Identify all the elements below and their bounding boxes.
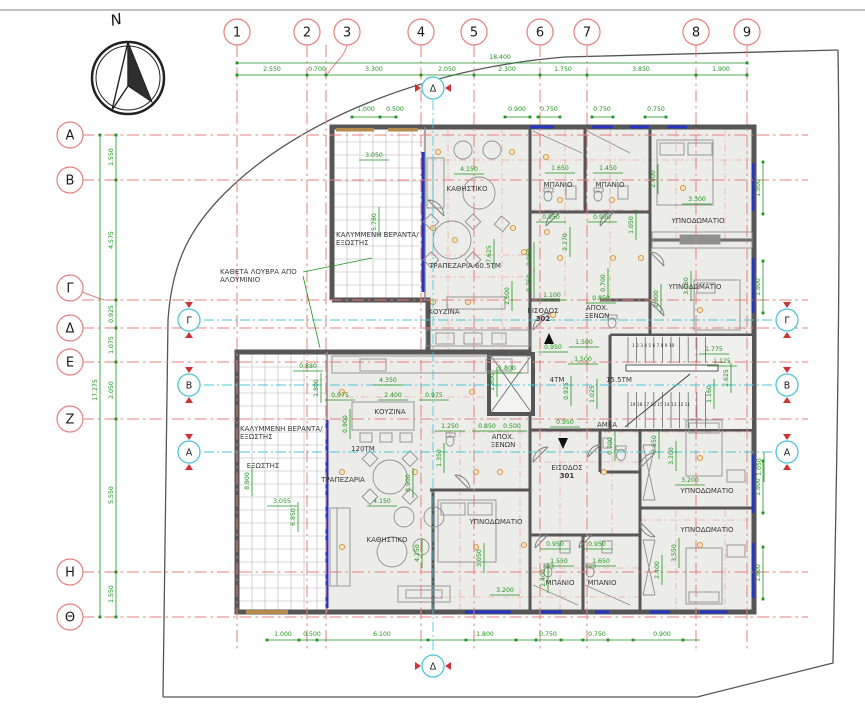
section-arrow-icon [445, 662, 451, 670]
room-label: ΥΠΝΟΔΩΜΑΤΙΟ [667, 283, 722, 291]
dimension-label: 1.800 [498, 365, 516, 372]
section-marker-letter: Β [186, 380, 193, 391]
dim-tick [99, 616, 102, 619]
dimension-label: 0.950 [546, 541, 564, 548]
dimension-label: 8.900 [244, 472, 251, 490]
dimension-label: 0.750 [588, 631, 606, 638]
room-label: ΥΠΝΟΔΩΜΑΤΙΟ [679, 487, 734, 495]
dimension-label: 0.500 [303, 631, 321, 638]
dim-tick [591, 116, 594, 119]
room-label: ΜΠΑΝΙΟ [546, 579, 575, 587]
grid-bubble-label: Β [66, 174, 75, 189]
dimension-label: 4.250 [414, 544, 421, 562]
dimension-label: 0.925 [563, 382, 570, 400]
dim-tick [535, 639, 538, 642]
dimension-label: 1.800 [755, 278, 762, 296]
dimension-label: 2.050 [438, 66, 456, 73]
section-arrow-icon [783, 367, 791, 373]
dim-tick [465, 639, 468, 642]
room-label: ΕΙΣΟΔΟΣ [551, 464, 582, 472]
louvre-annotation-line1: ΚΑΘΕΤΑ ΛΟΥΒΡΑ ΑΠΟ [220, 268, 297, 276]
dim-tick [644, 116, 647, 119]
dim-tick [762, 260, 765, 263]
room-label: ΚΑΛΥΜΜΕΝΗ ΒΕΡΑΝΤΑ/ [240, 425, 323, 433]
stair-numbers-up: 1 2 3 4 5 6 7 8 9 10 [632, 343, 675, 349]
section-arrow-icon [185, 332, 193, 338]
floor-plan-drawing: ΓΓΒΒΑΑΔΔ 18.4002.5500.7003.3002.0502.300… [0, 0, 865, 704]
light-dot-icon [601, 469, 606, 474]
dim-tick [537, 116, 540, 119]
dimension-label: 0.500 [503, 423, 521, 430]
dimension-label: 2.625 [723, 369, 730, 387]
dimension-label: 1.050 [756, 458, 763, 476]
section-arrow-icon [185, 434, 193, 440]
dimension-label: 0.950 [556, 419, 574, 426]
dimension-label: 0.880 [299, 363, 317, 370]
light-dot-icon [339, 469, 344, 474]
section-marker-letter: Γ [784, 315, 790, 326]
dimension-label: 1.125 [713, 358, 731, 365]
light-dot-icon [697, 307, 702, 312]
dimension-label: 2.050 [108, 381, 115, 399]
light-dot-icon [544, 229, 549, 234]
dimension-label: 6.100 [373, 631, 391, 638]
dimension-label: 7.625 [486, 245, 493, 263]
dimension-label: 0.750 [540, 106, 558, 113]
floor-plan-sheet: ΓΓΒΒΑΑΔΔ 18.4002.5500.7003.3002.0502.300… [0, 0, 865, 704]
room-label: ΜΠΑΝΙΟ [544, 181, 573, 189]
dimension-label: 1.100 [543, 292, 561, 299]
dimension-label: 1.800 [755, 179, 762, 197]
dimension-label: 3.200 [496, 587, 514, 594]
room-label: ΞΕΝΩΝ [491, 441, 516, 449]
dim-tick [560, 639, 563, 642]
dimension-label: 2.550 [263, 66, 281, 73]
room-label: ΚΟΥΖΙΝΑ [374, 408, 405, 416]
dimension-label: 1.500 [575, 339, 593, 346]
light-dot-icon [543, 154, 548, 159]
dimension-label: 1.350 [436, 449, 443, 467]
dimension-label: 1.800 [313, 379, 320, 397]
dim-tick [632, 639, 635, 642]
dimension-label: 2.270 [562, 233, 569, 251]
dimension-label: 1.550 [108, 585, 115, 603]
room-label: ΤΡΑΠΕΖΑΡΙΑ 60.5ΤΜ [428, 262, 501, 270]
dim-tick [99, 134, 102, 137]
north-compass-icon [92, 42, 164, 114]
dimension-label: 3.200 [681, 477, 699, 484]
dim-tick [306, 74, 309, 77]
room-label: 120ΤΜ [351, 445, 375, 453]
dimension-label: 0.750 [526, 274, 533, 292]
section-marker-letter: Α [186, 447, 193, 458]
dimension-label: 1.800 [755, 478, 762, 496]
grid-bubble-label: Δ [66, 322, 75, 337]
grid-bubble-label: Α [66, 129, 75, 144]
dim-tick [115, 299, 118, 302]
dim-tick [316, 639, 319, 642]
dim-tick [236, 74, 239, 77]
grid-bubble-label: 6 [536, 26, 544, 41]
section-arrow-icon [185, 464, 193, 470]
room-label: 4ΤΜ [550, 376, 565, 384]
grid-bubble-label: 2 [303, 26, 311, 41]
room-label: ΑΠΟΧ. [586, 304, 609, 312]
light-dot-icon [452, 237, 457, 242]
dim-tick [325, 74, 328, 77]
grid-bubble-label: Θ [65, 611, 75, 626]
room-label: ΜΠΑΝΙΟ [596, 181, 625, 189]
dimension-label: 3.200 [668, 447, 675, 465]
dimension-label: 4.150 [460, 166, 478, 173]
dimension-label: 2.400 [384, 392, 402, 399]
dim-tick [395, 116, 398, 119]
dimension-label: 6.850 [290, 508, 297, 526]
dimension-label: 2.600 [504, 287, 511, 305]
dimension-label: 0.900 [342, 415, 349, 433]
room-label: ΚΑΛΥΜΜΕΝΗ ΒΕΡΑΝΤΑ/ [336, 231, 419, 239]
dimension-label: 1.500 [574, 356, 592, 363]
dim-tick [586, 74, 589, 77]
room-label: ΚΟΥΖΙΝΑ [428, 308, 459, 316]
dimension-label: 3.050 [476, 549, 483, 567]
dimension-label: 0.950 [588, 541, 606, 548]
dim-tick [351, 116, 354, 119]
dimension-label: 0.950 [544, 344, 562, 351]
dimension-label: 1.550 [108, 148, 115, 166]
dim-tick [695, 74, 698, 77]
dimension-label: 3.850 [632, 66, 650, 73]
room-label: ΚΑΘΗΣΤΙΚΟ [366, 536, 408, 544]
dim-tick [298, 639, 301, 642]
dim-tick [427, 639, 430, 642]
dimension-label: 1.800 [476, 631, 494, 638]
grid-bubble-label: 3 [343, 26, 351, 41]
grid-bubble-label: Ε [66, 356, 74, 371]
dimension-label: 3.300 [688, 196, 706, 203]
room-label: ΥΠΝΟΔΩΜΑΤΙΟ [670, 217, 725, 225]
dimension-label: 3.300 [365, 66, 383, 73]
dim-tick [515, 639, 518, 642]
grid-bubble-label: 9 [743, 26, 751, 41]
grid-bubble-label: Η [65, 566, 75, 581]
dimension-label: 1.000 [357, 106, 375, 113]
grid-bubble-label: 8 [692, 26, 700, 41]
grid-bubble-label: 4 [417, 26, 425, 41]
bubble-leader [82, 292, 104, 300]
section-arrow-icon [185, 367, 193, 373]
dim-tick [539, 74, 542, 77]
light-dot-icon [497, 469, 502, 474]
dimension-label: 1.025 [589, 385, 596, 403]
light-dot-icon [435, 149, 440, 154]
dimension-label: 1.650 [592, 558, 610, 565]
grid-bubble-label: Γ [66, 282, 74, 297]
dim-tick [762, 598, 765, 601]
section-arrow-icon [783, 302, 791, 308]
room-label: ΑΜΕΑ [597, 421, 617, 429]
dimension-top-overall: 18.400 [489, 54, 511, 61]
stair-numbers-down: 19 18 17 16 15 14 13 12 11 [630, 402, 690, 408]
north-label: N [109, 10, 124, 30]
light-dot-icon [697, 455, 702, 460]
dimension-label: 0.900 [653, 631, 671, 638]
section-arrow-icon [445, 84, 451, 92]
room-label: ΕΙΣΟΔΟΣ [527, 307, 558, 315]
dim-tick [115, 616, 118, 619]
section-arrow-icon [783, 397, 791, 403]
dim-tick [762, 213, 765, 216]
section-marker-letter: Γ [186, 315, 192, 326]
dimension-label: 0.950 [542, 214, 560, 221]
dimension-label: 5.780 [371, 213, 378, 231]
dimension-label: 3.055 [273, 498, 291, 505]
dimension-label: 0.925 [108, 305, 115, 323]
section-marker-letter: Δ [430, 83, 437, 94]
dim-tick [746, 62, 749, 65]
dimension-label: 1.075 [108, 336, 115, 354]
light-dot-icon [610, 255, 615, 260]
dim-tick [115, 571, 118, 574]
dimension-label: 1.800 [755, 564, 762, 582]
dim-tick [607, 639, 610, 642]
room-label: 302 [536, 315, 551, 323]
dim-tick [379, 116, 382, 119]
dimension-label: 8.900 [405, 474, 412, 492]
section-marker-letter: Δ [430, 661, 437, 672]
room-label: ΞΕΝΩΝ [585, 312, 610, 320]
dimension-label: 2.300 [498, 66, 516, 73]
dimension-label: 1.900 [712, 66, 730, 73]
dimension-label: 1.650 [551, 165, 569, 172]
dimension-label: 1.250 [441, 423, 459, 430]
section-marker-letter: Β [784, 380, 791, 391]
light-dot-icon [521, 542, 526, 547]
light-dot-icon [697, 542, 702, 547]
dimension-label: 1.800 [489, 373, 496, 391]
dim-tick [115, 418, 118, 421]
section-marker-letter: Α [784, 447, 791, 458]
dimension-label: 3.550 [671, 544, 678, 562]
room-label: 15.5ΤΜ [606, 376, 632, 384]
room-label: ΕΞΩΣΤΗΣ [240, 433, 273, 441]
dimension-label: 0.700 [607, 437, 614, 455]
dimension-label: 1.000 [274, 631, 292, 638]
dimension-label: 0.900 [508, 106, 526, 113]
dimension-label: 1.750 [554, 66, 572, 73]
dimension-label: 0.950 [593, 214, 611, 221]
dimension-label: 0.850 [592, 295, 610, 302]
dim-tick [236, 62, 239, 65]
dimension-label: 4.575 [108, 231, 115, 249]
dimension-label: 5.550 [108, 486, 115, 504]
section-arrow-icon [783, 464, 791, 470]
dimension-label: 2.400 [650, 170, 657, 188]
room-label: ΥΠΝΟΔΩΜΑΤΙΟ [468, 518, 523, 526]
dim-tick [746, 74, 749, 77]
section-arrow-icon [783, 434, 791, 440]
dim-tick [115, 179, 118, 182]
light-dot-icon [509, 149, 514, 154]
room-label: 301 [560, 472, 575, 480]
dimension-label: 1.450 [599, 165, 617, 172]
section-arrow-icon [415, 662, 421, 670]
dim-tick [473, 74, 476, 77]
dim-tick [115, 327, 118, 330]
dim-tick [582, 639, 585, 642]
dim-tick [115, 134, 118, 137]
dim-tick [612, 116, 615, 119]
dimension-label: 1.160 [706, 385, 713, 403]
dimension-label: 0.850 [526, 248, 533, 266]
grid-bubble-label: 5 [470, 26, 478, 41]
dim-tick [266, 639, 269, 642]
dimension-label: 2.650 [651, 435, 658, 453]
dimension-label: 1.550 [550, 558, 568, 565]
room-label: ΕΞΩΣΤΗΣ [336, 239, 369, 247]
dimension-label: 0.750 [647, 106, 665, 113]
dimension-label: 4.150 [373, 498, 391, 505]
bubble-leader [327, 45, 347, 75]
dim-tick [762, 512, 765, 515]
dim-tick [665, 116, 668, 119]
dim-tick [682, 639, 685, 642]
light-dot-icon [638, 255, 643, 260]
room-label: ΕΞΩΣΤΗΣ [247, 462, 280, 470]
room-label: ΑΠΟΧ. [492, 433, 515, 441]
dimension-label: 0.500 [386, 106, 404, 113]
dim-tick [115, 361, 118, 364]
dimension-label: 3.050 [365, 152, 383, 159]
dimension-label: 0.975 [425, 392, 443, 399]
dim-tick [762, 312, 765, 315]
dimension-label: 0.700 [600, 274, 607, 292]
dimension-label: 0.750 [539, 631, 557, 638]
louvre-annotation-line2: ΑΛΟΥΜΙΝΙΟ [220, 276, 261, 284]
grid-bubble-label: 7 [583, 26, 591, 41]
dim-tick [420, 74, 423, 77]
dimension-label: 1.050 [628, 216, 635, 234]
dimension-label: 4.350 [379, 377, 397, 384]
light-dot-icon [609, 197, 614, 202]
room-label: ΥΠΝΟΔΩΜΑΤΙΟ [679, 526, 734, 534]
light-dot-icon [557, 255, 562, 260]
light-dot-icon [339, 544, 344, 549]
grid-bubble-label: 1 [233, 26, 241, 41]
dimension-label: 0.750 [593, 106, 611, 113]
grid-bubble-label: Ζ [66, 413, 75, 428]
dim-tick [762, 546, 765, 549]
dim-tick [504, 116, 507, 119]
light-dot-icon [510, 225, 515, 230]
dim-tick [559, 116, 562, 119]
section-arrow-icon [185, 397, 193, 403]
room-label: ΤΡΑΠΕΖΑΡΙΑ [320, 476, 365, 484]
room-label: ΜΠΑΝΙΟ [588, 579, 617, 587]
light-dot-icon [680, 185, 685, 190]
section-arrow-icon [783, 332, 791, 338]
dim-tick [762, 161, 765, 164]
room-label: ΚΑΘΗΣΤΙΚΟ [446, 185, 488, 193]
dimension-label: 2.400 [654, 561, 661, 579]
section-arrow-icon [185, 302, 193, 308]
dimension-label: 1.775 [705, 346, 723, 353]
dimension-label: 0.975 [331, 392, 349, 399]
dim-tick [529, 116, 532, 119]
dimension-left-overall: 17.275 [92, 379, 99, 401]
dimension-label: 0.700 [308, 66, 326, 73]
dimension-label: 2.000 [653, 290, 660, 308]
light-dot-icon [557, 197, 562, 202]
dimension-label: 0.850 [478, 423, 496, 430]
